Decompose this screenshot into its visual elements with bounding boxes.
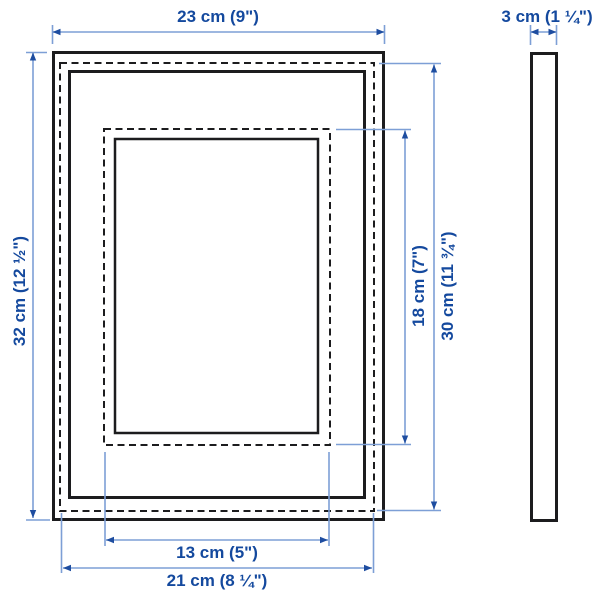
mat-picture-size-dashed-outline	[104, 129, 330, 445]
frame-side-view	[532, 54, 557, 521]
dim-outer-width-label: 23 cm (9")	[118, 6, 318, 28]
dim-inner-opening-height-label: 18 cm (7")	[408, 216, 430, 356]
frame-side-profile	[532, 54, 557, 521]
dim-inner-opening-width-label: 13 cm (5")	[117, 542, 317, 564]
frame-front-view	[54, 53, 384, 520]
dim-outer-height-label: 32 cm (12 ½")	[9, 201, 31, 381]
dim-picture-height-label: 30 cm (11 ¾")	[437, 196, 459, 376]
dim-depth-label: 3 cm (1 ¼")	[467, 6, 600, 28]
frame-dimension-diagram: 23 cm (9") 3 cm (1 ¼") 32 cm (12 ½") 18 …	[0, 0, 600, 600]
dim-picture-width-label: 21 cm (8 ¼")	[117, 570, 317, 592]
dim-depth-lines	[531, 25, 557, 45]
picture-size-dashed-outline	[60, 63, 374, 511]
diagram-linework	[0, 0, 600, 600]
mat-opening-edge	[115, 139, 318, 433]
